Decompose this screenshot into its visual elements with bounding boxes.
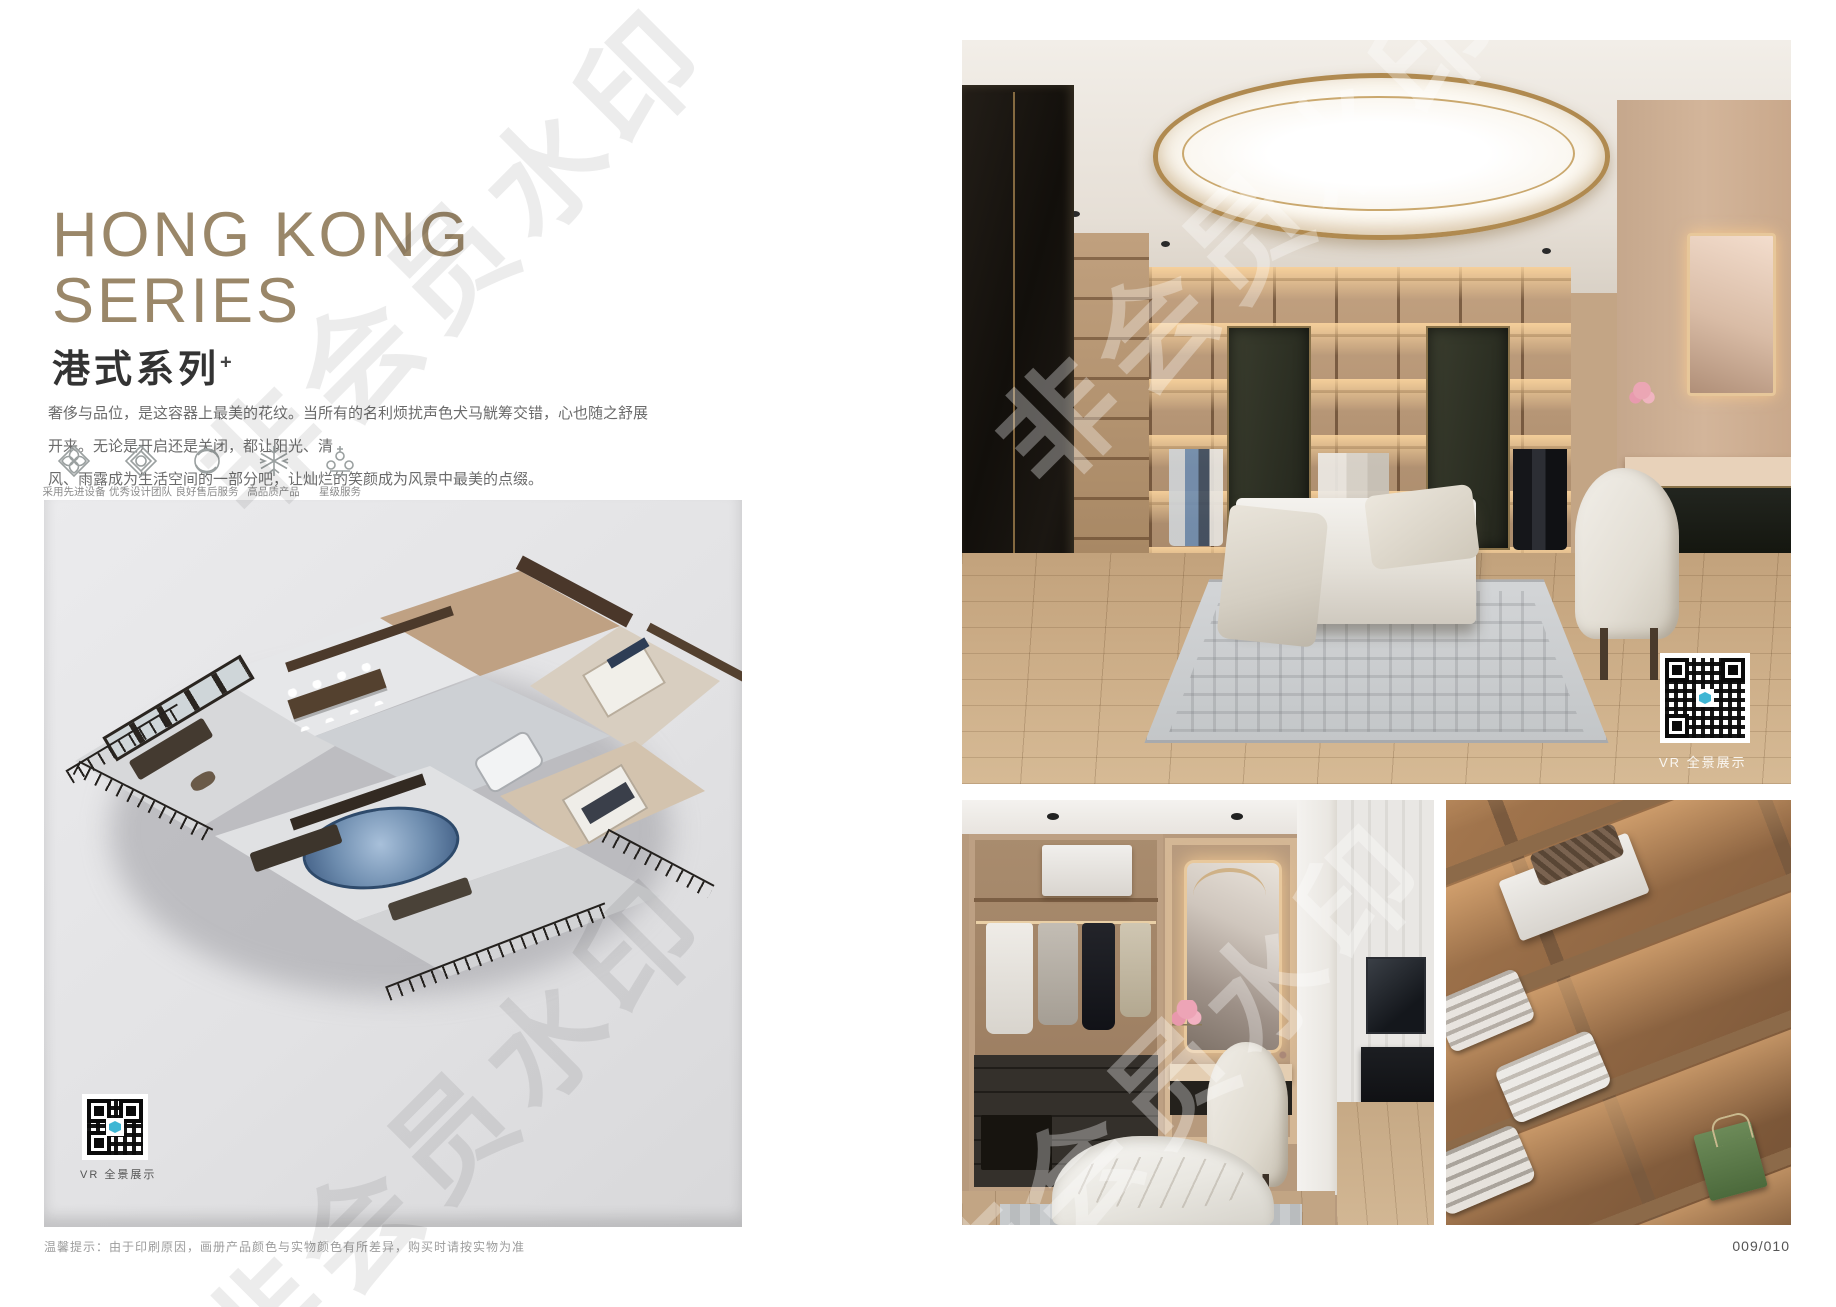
title-line1: HONG KONG bbox=[52, 200, 471, 270]
garment-gray bbox=[1038, 923, 1078, 1025]
garment-white bbox=[986, 923, 1033, 1034]
series-title-en: HONG KONG SERIES bbox=[52, 202, 471, 334]
mirror-reflection-arc bbox=[1193, 868, 1266, 923]
hallway-floor bbox=[1337, 1102, 1434, 1225]
main-photo-qr-code bbox=[1660, 653, 1750, 743]
feature-label: 星级服务 bbox=[319, 484, 361, 499]
hanging-clothes-left bbox=[1169, 449, 1223, 546]
floorplan-qr-code bbox=[82, 1094, 148, 1160]
ring-icon bbox=[190, 444, 224, 478]
rosette-icon bbox=[124, 444, 158, 478]
garment-dark bbox=[1082, 923, 1115, 1029]
downlight bbox=[1161, 241, 1170, 247]
qr-pattern bbox=[1665, 658, 1745, 738]
qr-eye bbox=[1665, 658, 1689, 682]
qr-pattern bbox=[87, 1099, 143, 1155]
photo-shelf-closeup bbox=[1446, 800, 1791, 1225]
pinwheel-icon bbox=[57, 444, 91, 478]
hanging-clothes-right bbox=[1513, 449, 1567, 549]
tv-artwork bbox=[1366, 957, 1427, 1033]
page-number: 009/010 bbox=[1732, 1238, 1790, 1254]
feature-star-service: 星级服务 bbox=[308, 444, 372, 499]
storage-box bbox=[1042, 845, 1132, 896]
crown-icon bbox=[323, 444, 357, 478]
ceiling-light-inner bbox=[1182, 96, 1576, 212]
feature-label: 采用先进设备 bbox=[43, 484, 106, 499]
feature-quality-product: 高品质产品 bbox=[242, 444, 306, 499]
vanity-chair bbox=[1575, 468, 1679, 639]
feature-advanced-equipment: 采用先进设备 bbox=[42, 444, 106, 499]
catalog-page: HONG KONG SERIES 港式系列+ 奢侈与品位，是这容器上最美的花纹。… bbox=[0, 0, 1836, 1307]
photo-dressing-area bbox=[962, 800, 1434, 1225]
feature-icons-row: 采用先进设备 优秀设计团队 良好售后服务 高品质产品 bbox=[42, 444, 372, 499]
qr-eye bbox=[1665, 714, 1689, 738]
bench-throw-blanket bbox=[1216, 504, 1329, 648]
feature-after-sales: 良好售后服务 bbox=[175, 444, 239, 499]
feature-label: 优秀设计团队 bbox=[109, 484, 172, 499]
dark-sideboard bbox=[1361, 1047, 1434, 1102]
qr-logo bbox=[1696, 689, 1714, 707]
footer-disclaimer: 温馨提示：由于印刷原因，画册产品颜色与实物颜色有所差异，购买时请按实物为准 bbox=[44, 1238, 525, 1255]
qr-logo bbox=[106, 1118, 124, 1136]
bench-throw-blanket-2 bbox=[1364, 484, 1480, 571]
dark-box bbox=[981, 1115, 1052, 1170]
blanket-folds bbox=[1075, 1157, 1245, 1208]
floorplan-qr-caption: VR 全景展示 bbox=[80, 1166, 156, 1182]
title-line2: SERIES bbox=[52, 266, 301, 336]
feature-label: 高品质产品 bbox=[247, 484, 300, 499]
vanity-mirror bbox=[1687, 233, 1776, 395]
vanity-flowers bbox=[1629, 382, 1655, 416]
isometric-apartment bbox=[50, 546, 736, 1106]
floorplan-render: VR 全景展示 bbox=[44, 500, 742, 1227]
downlight bbox=[1047, 813, 1059, 820]
feature-design-team: 优秀设计团队 bbox=[109, 444, 173, 499]
plus-mark: + bbox=[220, 351, 236, 373]
chair-legs bbox=[1600, 628, 1658, 680]
qr-eye bbox=[1721, 658, 1745, 682]
white-pillar bbox=[1297, 800, 1337, 1195]
main-photo-qr-caption: VR 全景展示 bbox=[1659, 752, 1747, 771]
snowflake-icon bbox=[257, 444, 291, 478]
closet-top-shelf bbox=[974, 898, 1158, 902]
garment-tan bbox=[1120, 923, 1151, 1017]
pink-flowers bbox=[1172, 1000, 1202, 1044]
main-photo-walkin-closet: VR 全景展示 bbox=[962, 40, 1791, 784]
series-title-cn: 港式系列+ bbox=[52, 338, 236, 393]
downlight bbox=[1231, 813, 1243, 820]
feature-label: 良好售后服务 bbox=[176, 484, 239, 499]
